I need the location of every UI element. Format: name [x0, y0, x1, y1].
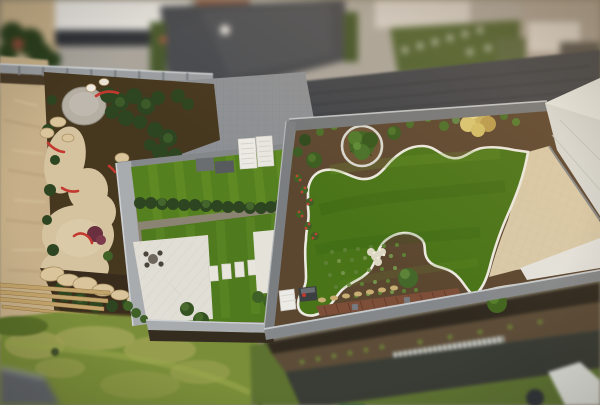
aerial-photo — [0, 0, 600, 405]
vignette — [0, 0, 600, 405]
garden-scene — [0, 0, 600, 405]
